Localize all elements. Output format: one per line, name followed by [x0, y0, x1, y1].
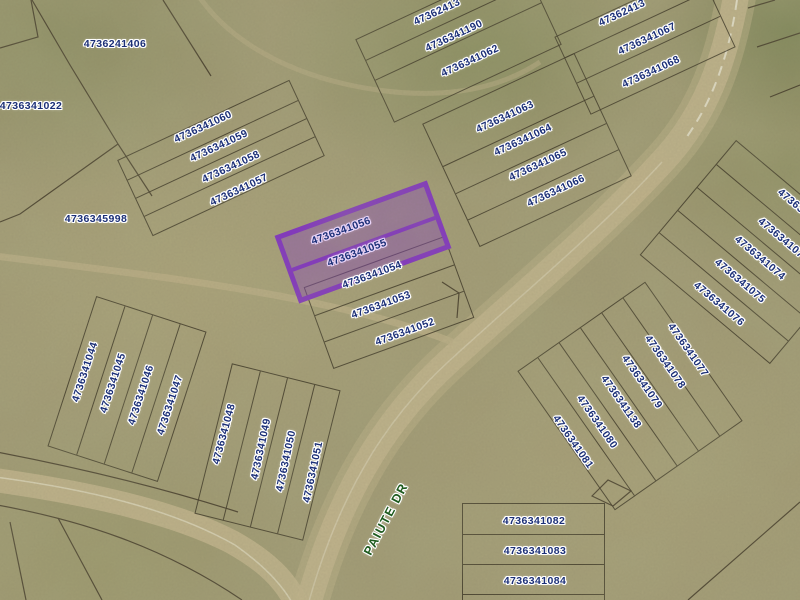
- parcel-label[interactable]: 4736241406: [84, 38, 146, 50]
- parcel-label[interactable]: 4736341084: [504, 575, 566, 587]
- parcel-label[interactable]: 4736341082: [503, 515, 565, 527]
- parcel-map-viewport[interactable]: 4736241406473634102247363459984736341060…: [0, 0, 800, 600]
- parcel-label[interactable]: 4736341022: [0, 100, 62, 112]
- parcel-label[interactable]: 4736345998: [65, 213, 127, 225]
- parcel-label[interactable]: 4736341083: [504, 545, 566, 557]
